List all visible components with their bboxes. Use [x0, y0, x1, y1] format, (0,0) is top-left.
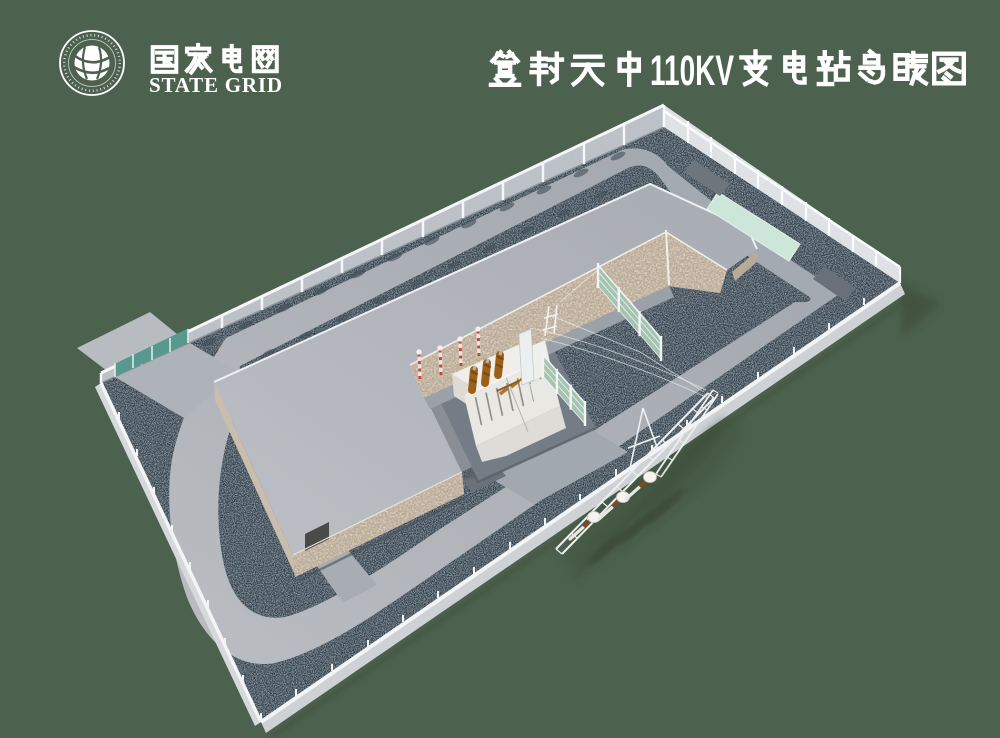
svg-text:110KV: 110KV [650, 47, 734, 95]
svg-text:STATE GRID: STATE GRID [149, 73, 283, 97]
